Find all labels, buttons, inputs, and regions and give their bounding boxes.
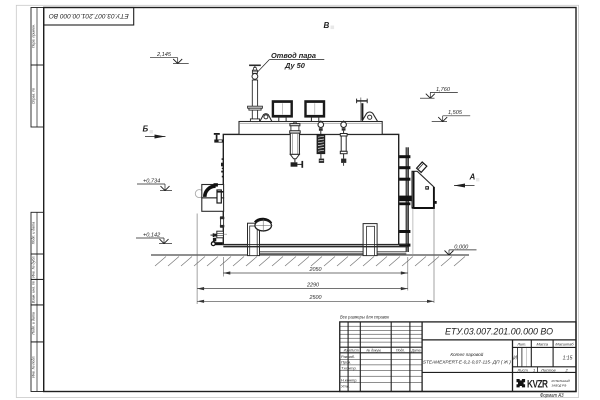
svg-text:Пров.: Пров. [341,360,351,365]
svg-text:Инв. № подл.: Инв. № подл. [32,356,36,378]
svg-text:Отвод пара: Отвод пара [271,51,316,60]
svg-text:2,145: 2,145 [156,52,172,58]
svg-text:1,505: 1,505 [448,110,463,116]
svg-text:КОТЕЛЬНЫЙ: КОТЕЛЬНЫЙ [552,379,571,383]
svg-text:Лист: Лист [517,367,529,372]
svg-text:А: А [469,173,476,182]
svg-text:Листов: Листов [540,367,556,372]
svg-text:Масштаб: Масштаб [555,342,574,347]
svg-text:STEAMEXPERT-Е-0,2-0,07-115- ДП: STEAMEXPERT-Е-0,2-0,07-115- ДП ( Ж ) [423,359,511,364]
svg-text:Т.контр.: Т.контр. [341,366,357,371]
svg-text:И: И [513,356,517,362]
svg-text:0,000: 0,000 [454,244,469,250]
svg-text:+0,734: +0,734 [143,178,160,184]
svg-text:2290: 2290 [306,282,319,288]
svg-text:1:15: 1:15 [563,356,573,362]
svg-text:В: В [324,21,330,30]
svg-text:Справ. №: Справ. № [32,88,36,104]
svg-text:Подп.: Подп. [396,348,405,352]
svg-text:KVZR: KVZR [527,379,548,391]
svg-text:Инв. № дубл.: Инв. № дубл. [32,256,36,278]
svg-text:ЗАВОД РФ: ЗАВОД РФ [552,384,567,388]
svg-text:Лит.: Лит. [516,342,526,347]
svg-text:ЕТУ.03.007.201.00.000 ВО: ЕТУ.03.007.201.00.000 ВО [49,12,129,19]
svg-text:Взам. инв. №: Взам. инв. № [32,281,36,303]
svg-text:Котел паровой: Котел паровой [450,351,483,357]
svg-text:2050: 2050 [309,267,322,273]
svg-text:+0,142: +0,142 [143,232,161,238]
svg-text:Ду 50: Ду 50 [284,61,306,70]
svg-text:Дата: Дата [411,348,421,352]
svg-text:Подп. и дата: Подп. и дата [32,312,36,335]
svg-text:Разраб.: Разраб. [341,354,355,359]
svg-text:2500: 2500 [309,295,322,301]
svg-text:1: 1 [533,367,535,372]
svg-text:Масса: Масса [536,342,548,347]
svg-text:Подп. и дата: Подп. и дата [32,222,36,245]
svg-text:Н.контр.: Н.контр. [341,378,357,383]
svg-text:Б: Б [143,125,149,134]
svg-text:Все размеры для справок: Все размеры для справок [340,314,390,319]
svg-text:№ докум.: № докум. [367,348,382,352]
svg-text:Лист: Лист [349,348,359,352]
svg-text:Перв. примен.: Перв. примен. [32,24,36,48]
svg-text:Формат А3: Формат А3 [540,393,564,399]
svg-text:ЕТУ.03.007.201.00.000 ВО: ЕТУ.03.007.201.00.000 ВО [445,325,554,336]
svg-text:Утв.: Утв. [341,384,350,389]
svg-text:1,760: 1,760 [436,87,451,93]
